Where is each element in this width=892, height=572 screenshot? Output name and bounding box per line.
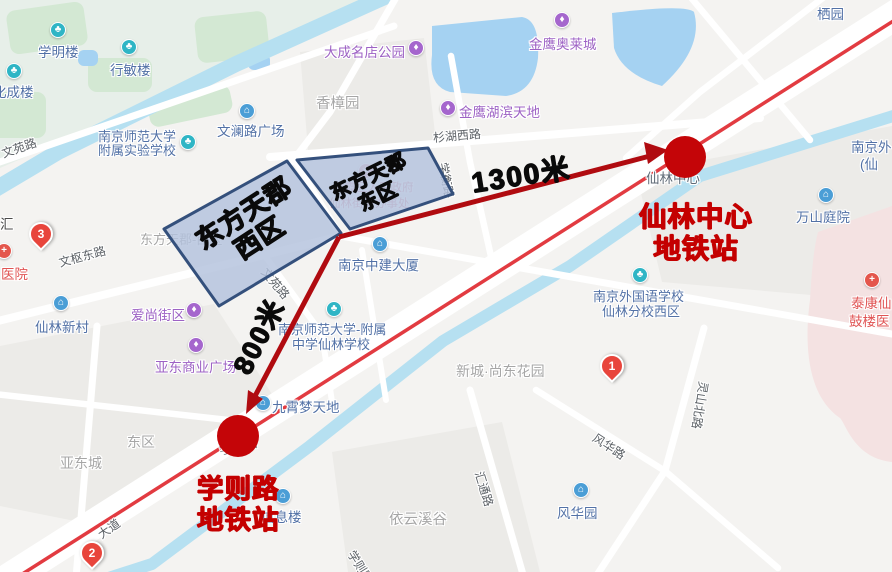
- xuezelu-station-line1: 学则路: [197, 474, 317, 505]
- xianlin-center-station-line2: 地铁站: [637, 233, 755, 265]
- distance-label-1300m: 1300米: [444, 143, 598, 206]
- xianlin-center-station-label: 仙林中心 地铁站: [637, 201, 755, 265]
- estate-west-label: 东方天郡 西区: [173, 161, 331, 292]
- annotation-text-layer: 东方天郡 西区 东方天郡 东区 1300米 800米 仙林中心 地铁站 学则路 …: [0, 0, 892, 572]
- estate-east-label: 东方天郡 东区: [311, 142, 438, 234]
- distance-label-800m: 800米: [206, 260, 309, 411]
- xianlin-center-station-line1: 仙林中心: [637, 201, 755, 233]
- map-canvas[interactable]: ♣ 学明楼 ♣ 行敏楼 ♣ 化成楼 ⌂ 文澜路广场 ♣ 南京师范大学 附属实验学…: [0, 0, 892, 572]
- xuezelu-station-label: 学则路 地铁站: [197, 474, 317, 535]
- xuezelu-station-line2: 地铁站: [197, 505, 317, 536]
